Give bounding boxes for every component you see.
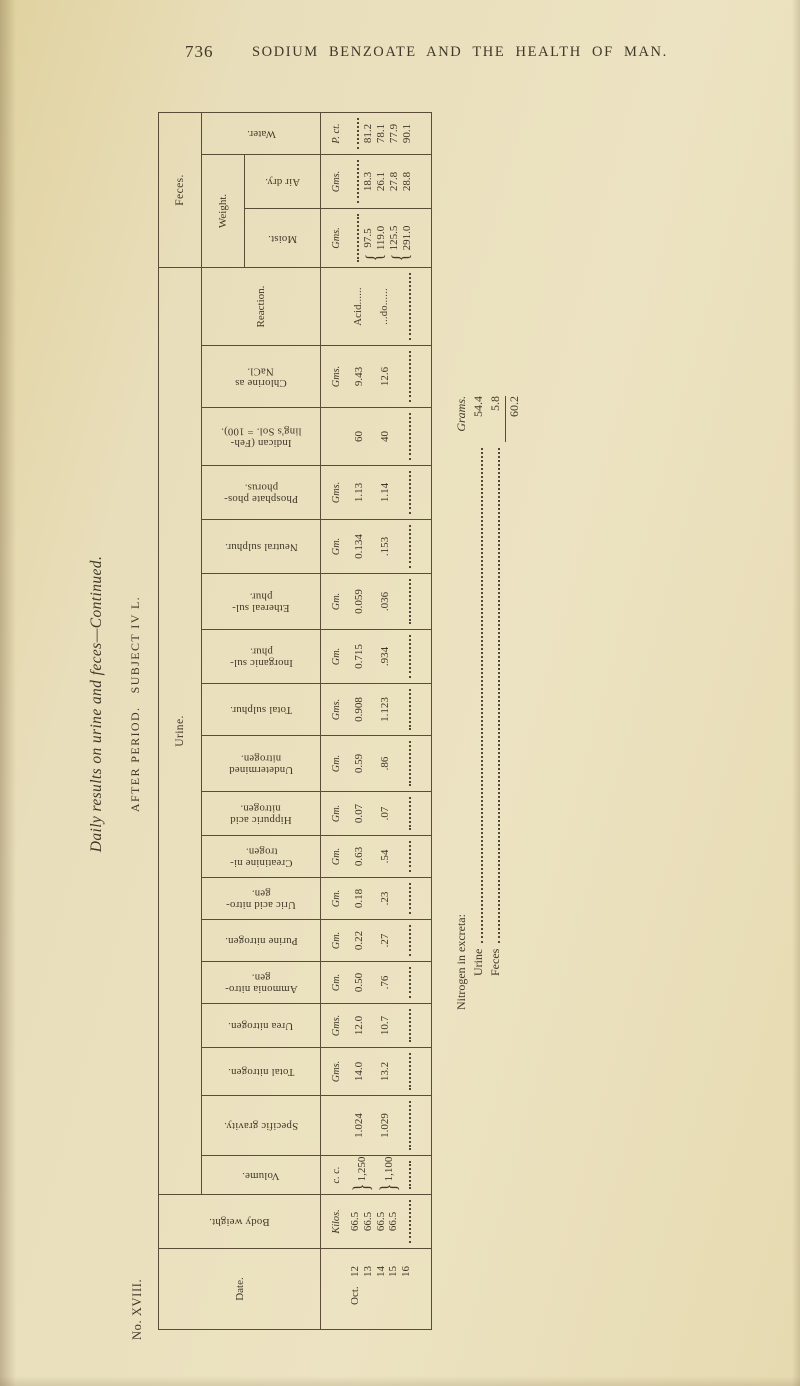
unit-label: P. ct. (331, 113, 342, 154)
volume-data: c. c. } 1,250 } 1,100 (321, 1156, 431, 1194)
urine-column: Undetermined nitrogen. Gm. 0.59 .86 (202, 736, 431, 792)
value-oct14-15: 10.7 (379, 1004, 391, 1047)
no-entry-dots (409, 413, 411, 460)
column-header: Specific gravity. (202, 1096, 321, 1155)
summary-heading-line: Nitrogen in excreta: Grams. (452, 396, 469, 1010)
column-data: 1.024 1.029 (321, 1096, 431, 1155)
body-weight-value: 66.5 (349, 1195, 361, 1248)
summary-row-value: 5.8 (488, 396, 503, 442)
series-label: No. XVIII. (130, 1279, 145, 1340)
column-header: Inorganic sul- phur. (202, 630, 321, 683)
reaction-header: Reaction. (202, 268, 321, 345)
value-oct12-13: 1.13 (353, 466, 365, 519)
column-data: Gm. 0.715 .934 (321, 630, 431, 683)
feces-value: 26.1 (375, 155, 387, 208)
body-weight-values: 66.5 66.5 66.5 66.5 (321, 1195, 431, 1248)
column-header: Undetermined nitrogen. (202, 736, 321, 791)
column-header: Phosphate phos- phorus. (202, 466, 321, 519)
summary-row: Urine 54.4 (469, 396, 486, 1010)
column-header: Ammonia nitro- gen. (202, 962, 321, 1003)
value-oct12-13: 60 (353, 408, 365, 465)
unit-label: Gm. (331, 736, 342, 791)
column-data: Gm. 0.059 .036 (321, 574, 431, 629)
urine-column: Specific gravity. 1.024 1.029 (202, 1096, 431, 1156)
total-rule (505, 396, 506, 442)
column-data: Gms. 97.5 119.0 125.5 291.0 { { (321, 209, 431, 267)
summary-total: 60.2 (507, 396, 522, 1010)
weight-columns: Moist. Gms. 97.5 119.0 125.5 291.0 { (245, 155, 431, 267)
feces-group-header: Feces. (159, 113, 202, 267)
no-entry-dots (357, 118, 359, 149)
column-data: Gms. 1.13 1.14 (321, 466, 431, 519)
water-data: P. ct. 81.2 78.1 77.9 90.1 (321, 113, 431, 154)
column-data: Gms. 18.3 26.1 27.8 28.8 (321, 155, 431, 208)
unit-label: Gm. (331, 962, 342, 1003)
value-oct14-15: 1.123 (379, 684, 391, 735)
water-value: 90.1 (401, 113, 413, 154)
no-entry-dots (409, 797, 411, 830)
water-value: 81.2 (362, 113, 374, 154)
value-oct12-13: 9.43 (353, 346, 365, 407)
table-caption: Daily results on urine and feces—Continu… (88, 78, 106, 1330)
value-oct14-15: 1.14 (379, 466, 391, 519)
unit-label: Gms. (331, 209, 342, 267)
dotted-leader (497, 448, 500, 943)
volume-value: 1,250 (356, 1157, 368, 1182)
value-oct12-13: 0.059 (353, 574, 365, 629)
row-pair-brace: } (377, 1184, 401, 1192)
urine-column: Urea nitrogen. Gms. 12.0 10.7 (202, 1004, 431, 1048)
unit-label: Gm. (331, 574, 342, 629)
urine-column: Phosphate phos- phorus. Gms. 1.13 1.14 (202, 466, 431, 520)
volume-value: 1,100 (383, 1157, 395, 1182)
summary-unit-heading: Grams. (454, 396, 469, 432)
body-weight-data: Kilos. 66.5 66.5 66.5 66.5 (321, 1195, 431, 1248)
day-value: 14 (375, 1257, 387, 1277)
value-oct14-15: .07 (379, 792, 391, 835)
value-oct14-15: .23 (379, 878, 391, 919)
value-oct12-13: 14.0 (353, 1048, 365, 1095)
unit-label: Gms. (331, 155, 342, 208)
column-volume: Volume. c. c. } 1,250 } 1,100 (202, 1156, 431, 1194)
column-data: Gm. 0.63 .54 (321, 836, 431, 877)
value-oct12-13: 0.59 (353, 736, 365, 791)
column-data: Gm. 0.59 .86 (321, 736, 431, 791)
day-value: 16 (400, 1257, 412, 1277)
value-oct12-13: 0.07 (353, 792, 365, 835)
no-entry-dots (409, 689, 411, 730)
urine-column: Total sulphur. Gms. 0.908 1.123 (202, 684, 431, 736)
feces-weight-column: Moist. Gms. 97.5 119.0 125.5 291.0 { (245, 209, 431, 267)
urine-columns: Volume. c. c. } 1,250 } 1,100 (202, 268, 431, 1194)
value-oct14-15: .86 (379, 736, 391, 791)
column-body-weight: Body weight. Kilos. 66.5 66.5 66.5 66.5 (159, 1195, 431, 1249)
column-data: Gm. 0.50 .76 (321, 962, 431, 1003)
body-weight-value: 66.5 (362, 1195, 374, 1248)
value-oct12-13: 1.024 (353, 1096, 365, 1155)
value-oct14-15: .54 (379, 836, 391, 877)
feces-columns: Weight. Moist. Gms. 97.5 (202, 113, 431, 267)
urine-column: Uric acid nitro- gen. Gm. 0.18 .23 (202, 878, 431, 920)
day-value: 13 (362, 1257, 374, 1277)
unit-label: Gms. (331, 684, 342, 735)
column-header: Indican (Feh- ling's Sol. = 100). (202, 408, 321, 465)
no-entry-dots (409, 883, 411, 914)
no-entry-dots (409, 841, 411, 872)
column-header: Hippuric acid nitrogen. (202, 792, 321, 835)
date-header: Date. (159, 1249, 321, 1329)
no-entry-dots (409, 1200, 411, 1243)
value-oct14-15: .934 (379, 630, 391, 683)
unit-label: Gm. (331, 630, 342, 683)
rotated-table-canvas: Daily results on urine and feces—Continu… (0, 0, 800, 1386)
pooled-volume: } 1,100 (375, 1157, 402, 1193)
unit-label: Gms. (331, 466, 342, 519)
dotted-leader (480, 448, 483, 943)
feces-value: 18.3 (362, 155, 374, 208)
date-data: Oct. 12 13 14 15 16 (321, 1249, 431, 1329)
urine-group-header: Urine. (159, 268, 202, 1194)
column-reaction: Reaction. Acid...... ...do...... (202, 268, 431, 346)
value-oct14-15: 1.029 (379, 1096, 391, 1155)
no-entry-dots (409, 1009, 411, 1042)
column-data: Gm. 0.07 .07 (321, 792, 431, 835)
row-pair-brace: { (362, 253, 387, 262)
urine-column: Purine nitrogen. Gm. 0.22 .27 (202, 920, 431, 962)
column-header: Total nitrogen. (202, 1048, 321, 1095)
nitrogen-summary: Nitrogen in excreta: Grams. Urine 54.4 F… (452, 396, 522, 1010)
value-oct14-15: 40 (379, 408, 391, 465)
pooled-volume: } 1,250 (348, 1157, 375, 1193)
body-weight-value: 66.5 (387, 1195, 399, 1248)
weight-subheader: Weight. (202, 155, 245, 267)
no-entry-dots (409, 471, 411, 514)
unit-label: Gm. (331, 520, 342, 573)
urine-group: Urine. Volume. c. c. } 1,250 (159, 268, 431, 1195)
body-weight-value: 66.5 (375, 1195, 387, 1248)
value-oct14-15: 13.2 (379, 1048, 391, 1095)
no-entry-dots (409, 635, 411, 678)
reaction-oct12-13: Acid...... (353, 268, 364, 345)
unit-label: Gm. (331, 792, 342, 835)
no-entry-dots (409, 351, 411, 402)
summary-heading: Nitrogen in excreta: (454, 914, 469, 1010)
unit-label: Gms. (331, 346, 342, 407)
reaction-oct14-15: ...do...... (379, 268, 390, 345)
value-oct12-13: 0.50 (353, 962, 365, 1003)
feces-weight-column: Air dry. Gms. 18.3 26.1 27.8 28.8 (245, 155, 431, 209)
scanned-book-page: { "page": { "number": "736", "running_ti… (0, 0, 800, 1386)
urine-column: Ethereal sul- phur. Gm. 0.059 .036 (202, 574, 431, 630)
day-value: 15 (387, 1257, 399, 1277)
urine-column: Creatinine ni- trogen. Gm. 0.63 .54 (202, 836, 431, 878)
column-header: Uric acid nitro- gen. (202, 878, 321, 919)
summary-row-label: Feces (488, 949, 503, 976)
feces-value: 28.8 (401, 155, 413, 208)
unit-label: Gm. (331, 920, 342, 961)
unit-label: Gms. (331, 1004, 342, 1047)
unit-label: Gms. (331, 1048, 342, 1095)
water-value: 77.9 (388, 113, 400, 154)
no-entry-dots (409, 1101, 411, 1150)
feces-group: Feces. Weight. Moist. Gms. (159, 113, 431, 268)
value-oct12-13: 0.715 (353, 630, 365, 683)
value-oct14-15: .76 (379, 962, 391, 1003)
value-oct12-13: 0.908 (353, 684, 365, 735)
row-pair-brace: { (388, 253, 413, 262)
column-data: Gms. 9.43 12.6 (321, 346, 431, 407)
value-oct14-15: .27 (379, 920, 391, 961)
column-header: Moist. (245, 209, 321, 267)
column-header: Purine nitrogen. (202, 920, 321, 961)
urine-column: Chlorine as NaCl. Gms. 9.43 12.6 (202, 346, 431, 408)
no-entry-dots (409, 273, 411, 340)
column-header: Urea nitrogen. (202, 1004, 321, 1047)
column-header: Ethereal sul- phur. (202, 574, 321, 629)
no-entry-dots (409, 525, 411, 568)
column-data: Gms. 12.0 10.7 (321, 1004, 431, 1047)
table-subcaption: AFTER PERIOD. SUBJECT IV L. (128, 78, 143, 1330)
column-data: 60 40 (321, 408, 431, 465)
volume-header: Volume. (202, 1156, 321, 1194)
no-entry-dots (409, 1161, 411, 1189)
value-oct12-13: 0.18 (353, 878, 365, 919)
urine-column: Indican (Feh- ling's Sol. = 100). 60 40 (202, 408, 431, 466)
urine-column: Inorganic sul- phur. Gm. 0.715 .934 (202, 630, 431, 684)
value-oct12-13: 0.134 (353, 520, 365, 573)
column-data: Gm. 0.134 .153 (321, 520, 431, 573)
water-header: Water. (202, 113, 321, 154)
urine-column: Ammonia nitro- gen. Gm. 0.50 .76 (202, 962, 431, 1004)
value-oct12-13: 0.22 (353, 920, 365, 961)
no-entry-dots (409, 741, 411, 786)
value-oct14-15: .036 (379, 574, 391, 629)
unit-label: Gm. (331, 878, 342, 919)
urine-column: Neutral sulphur. Gm. 0.134 .153 (202, 520, 431, 574)
day-value: 12 (349, 1257, 361, 1277)
no-entry-dots (409, 967, 411, 998)
weight-subgroup: Weight. Moist. Gms. 97.5 (202, 155, 431, 267)
value-oct12-13: 12.0 (353, 1004, 365, 1047)
feces-value: 27.8 (388, 155, 400, 208)
summary-row: Feces 5.8 (486, 396, 503, 1010)
column-data: Gms. 14.0 13.2 (321, 1048, 431, 1095)
column-data: Gms. 0.908 1.123 (321, 684, 431, 735)
column-header: Air dry. (245, 155, 321, 208)
value-oct12-13: 0.63 (353, 836, 365, 877)
day-list: 12 13 14 15 16 (321, 1249, 431, 1329)
summary-row-label: Urine (471, 949, 486, 976)
body-weight-header: Body weight. (159, 1195, 321, 1248)
column-header: Chlorine as NaCl. (202, 346, 321, 407)
summary-row-value: 54.4 (471, 396, 486, 442)
unit-label: c. c. (331, 1156, 342, 1194)
no-entry-dots (357, 214, 359, 262)
column-data: Gm. 0.22 .27 (321, 920, 431, 961)
no-entry-dots (409, 925, 411, 956)
unit-label: Gm. (331, 836, 342, 877)
column-header: Total sulphur. (202, 684, 321, 735)
urine-column: Total nitrogen. Gms. 14.0 13.2 (202, 1048, 431, 1096)
no-entry-dots (409, 1053, 411, 1090)
column-water: Water. P. ct. 81.2 78.1 77.9 90.1 (202, 113, 431, 155)
water-value: 78.1 (375, 113, 387, 154)
value-oct14-15: .153 (379, 520, 391, 573)
no-entry-dots (409, 579, 411, 624)
value-oct14-15: 12.6 (379, 346, 391, 407)
row-pair-brace: } (350, 1184, 374, 1192)
column-header: Neutral sulphur. (202, 520, 321, 573)
column-data: Gm. 0.18 .23 (321, 878, 431, 919)
column-header: Creatinine ni- trogen. (202, 836, 321, 877)
reaction-data: Acid...... ...do...... (321, 268, 431, 345)
column-date: Date. Oct. 12 13 14 15 16 (159, 1249, 431, 1329)
results-table: Date. Oct. 12 13 14 15 16 (158, 112, 432, 1330)
no-entry-dots (357, 160, 359, 203)
urine-column: Hippuric acid nitrogen. Gm. 0.07 .07 (202, 792, 431, 836)
